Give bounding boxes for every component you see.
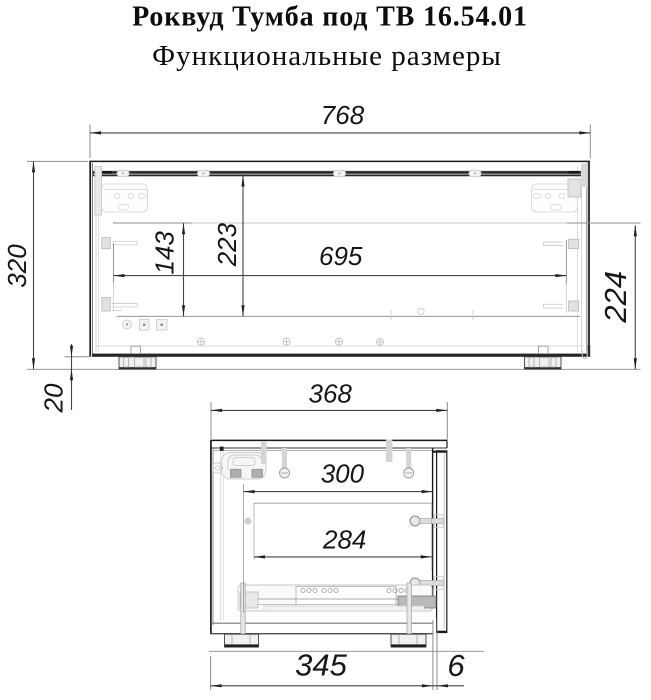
svg-text:300: 300 (321, 459, 365, 489)
svg-text:768: 768 (321, 100, 365, 130)
svg-text:695: 695 (319, 241, 363, 271)
svg-text:223: 223 (212, 222, 242, 267)
svg-text:143: 143 (149, 231, 179, 275)
svg-text:6: 6 (447, 648, 465, 683)
svg-text:Роквуд Тумба под ТВ 16.54.01: Роквуд Тумба под ТВ 16.54.01 (132, 2, 528, 33)
svg-text:320: 320 (2, 244, 32, 288)
svg-text:Функциональные размеры: Функциональные размеры (152, 40, 502, 72)
svg-text:284: 284 (322, 525, 366, 555)
svg-text:368: 368 (309, 379, 353, 409)
svg-text:20: 20 (39, 383, 69, 413)
svg-text:345: 345 (295, 648, 347, 683)
svg-text:224: 224 (598, 271, 633, 324)
